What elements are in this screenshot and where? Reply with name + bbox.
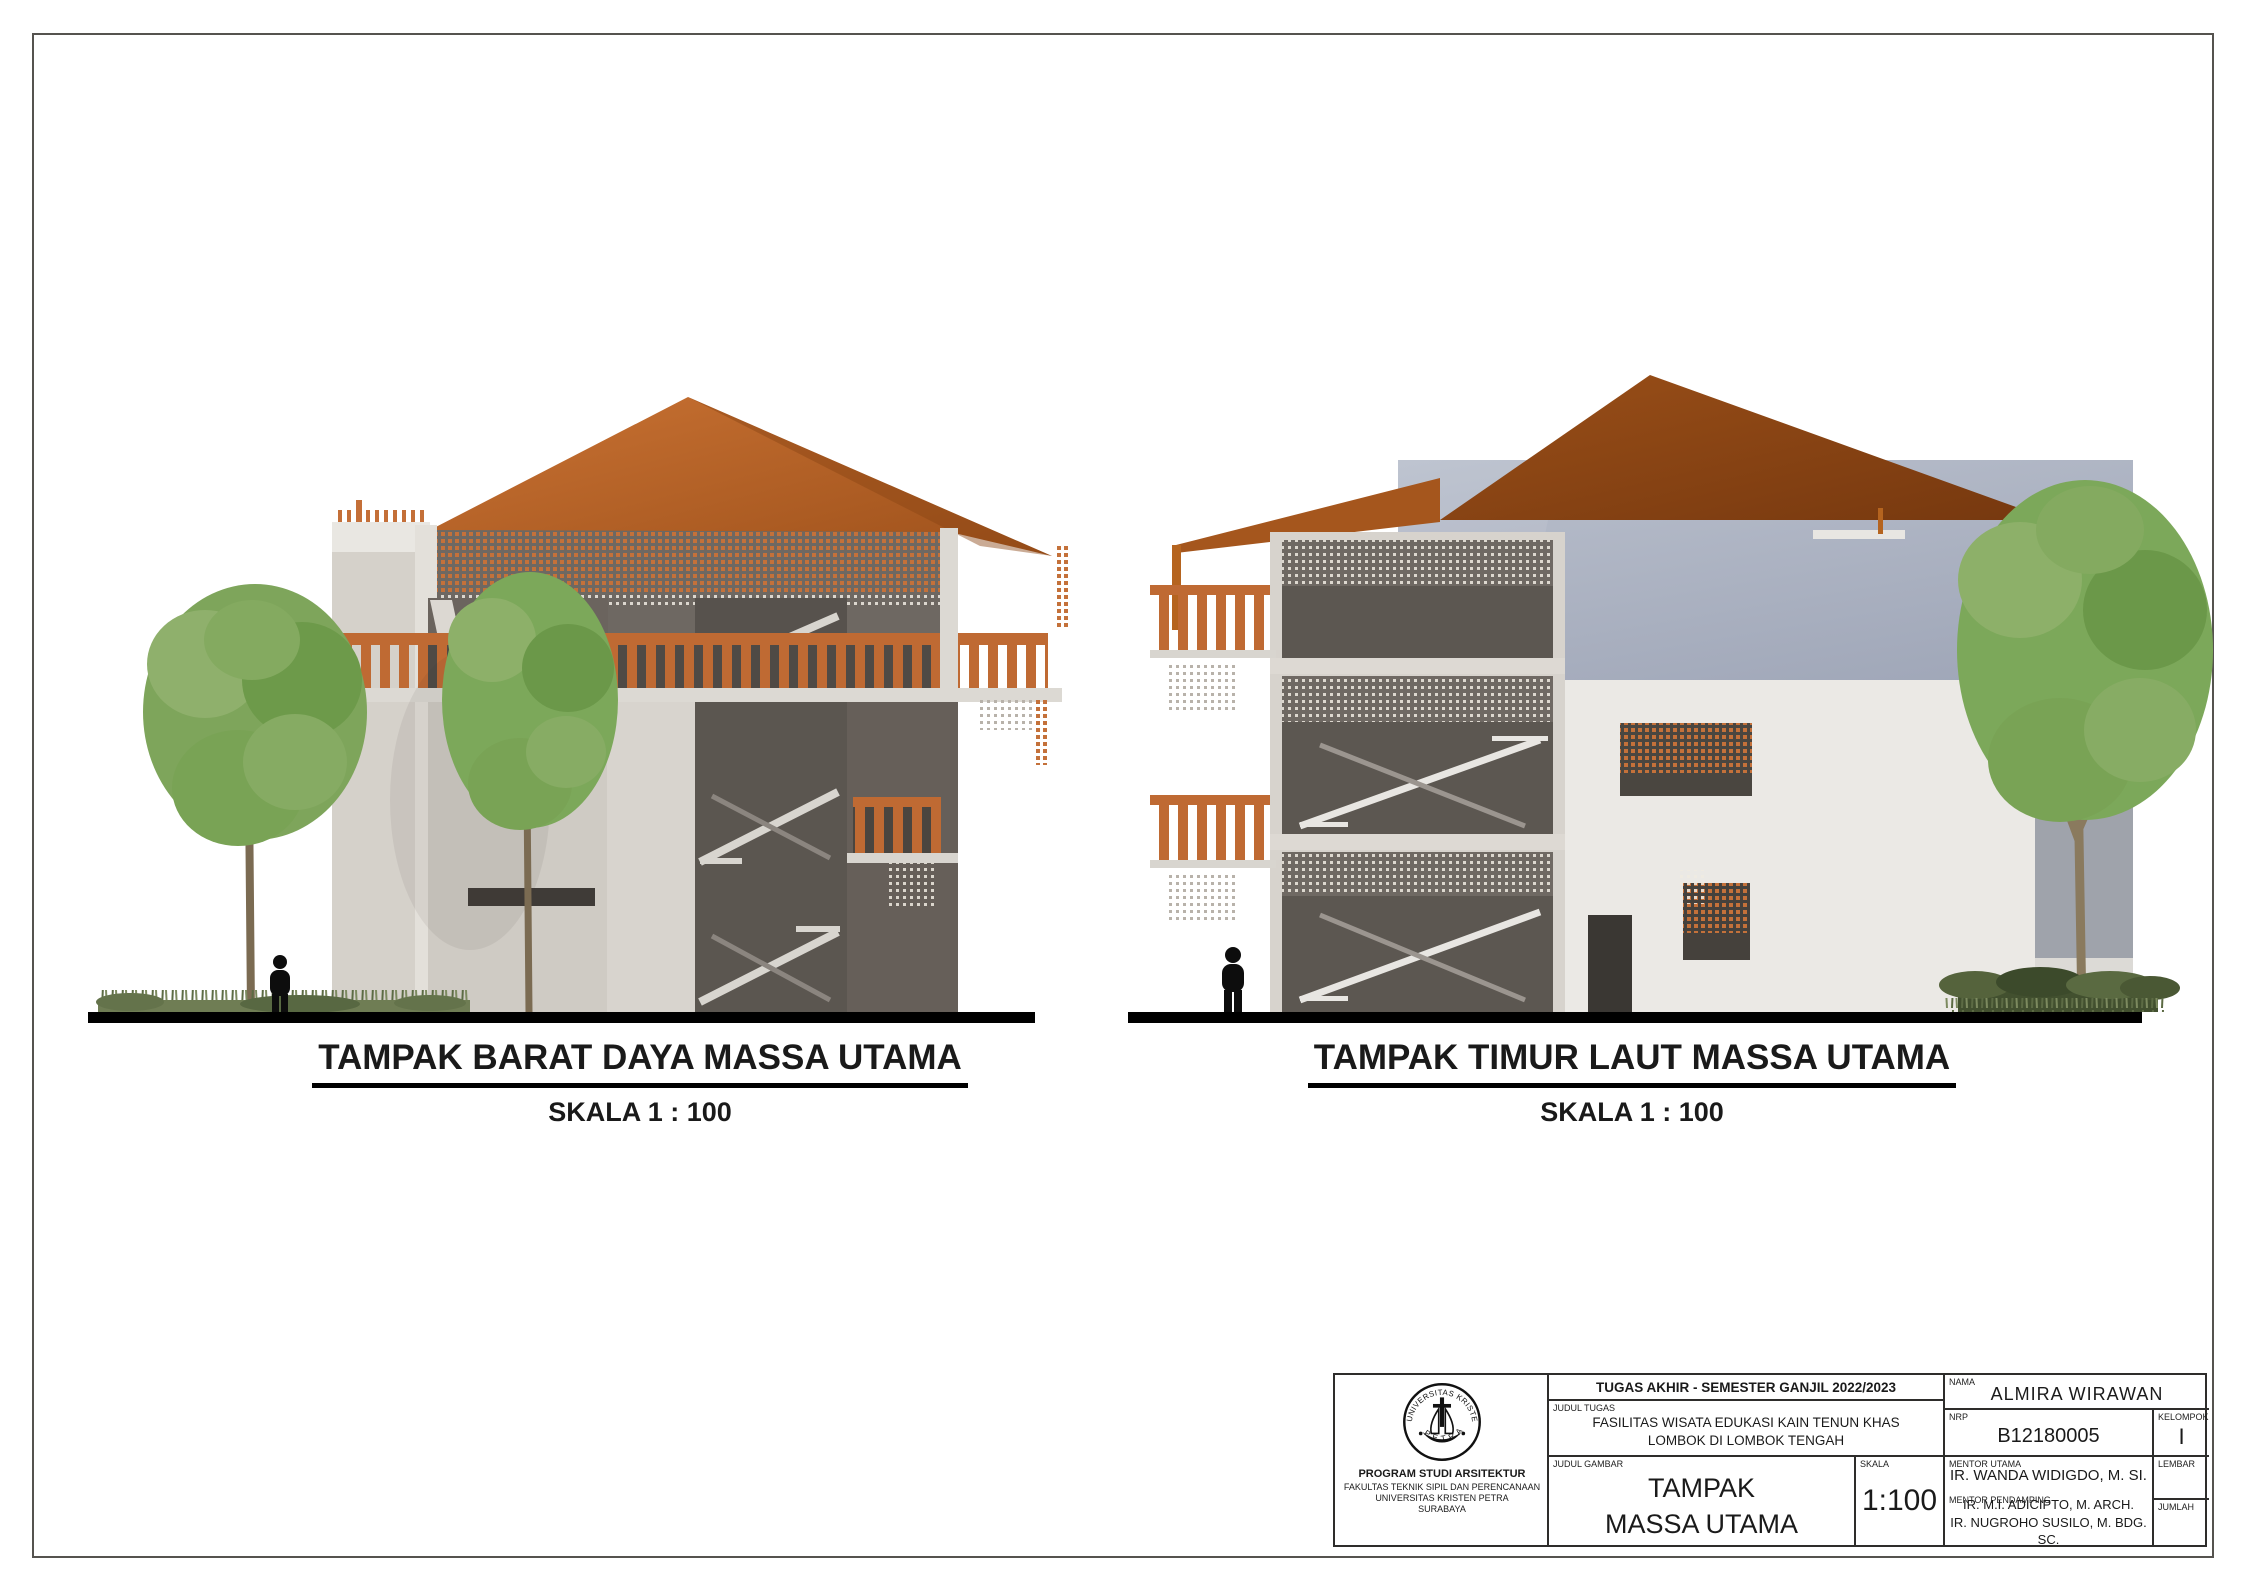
figure-title: TAMPAK BARAT DAYA MASSA UTAMA bbox=[312, 1038, 968, 1088]
judul-gambar-value-line2: MASSA UTAMA bbox=[1605, 1506, 1798, 1542]
balcony-fragment bbox=[1150, 585, 1276, 714]
university-name: UNIVERSITAS KRISTEN PETRA bbox=[1335, 1493, 1549, 1504]
mentor-pendamping-label: MENTOR PENDAMPING bbox=[1949, 1495, 2051, 1505]
faculty-name: FAKULTAS TEKNIK SIPIL DAN PERENCANAAN bbox=[1335, 1482, 1549, 1493]
judul-tugas-value-line2: LOMBOK DI LOMBOK TENGAH bbox=[1648, 1432, 1844, 1450]
nama-value: ALMIRA WIRAWAN bbox=[1991, 1384, 2164, 1405]
judul-tugas-value-line1: FASILITAS WISATA EDUKASI KAIN TENUN KHAS bbox=[1592, 1414, 1899, 1432]
kelompok-value: I bbox=[2178, 1424, 2184, 1450]
judul-tugas-cell: JUDUL TUGAS FASILITAS WISATA EDUKASI KAI… bbox=[1549, 1401, 1945, 1457]
hanging-screen bbox=[980, 700, 1032, 730]
column-strip bbox=[940, 528, 958, 702]
finial bbox=[1878, 508, 1883, 534]
title-block: UNIVERSITAS KRISTEN PETRA bbox=[1333, 1373, 2207, 1547]
mentor-utama-value: IR. WANDA WIDIGDO, M. SI. bbox=[1945, 1467, 2152, 1484]
hip-roof bbox=[1440, 375, 2052, 520]
lembar-label: LEMBAR bbox=[2158, 1459, 2195, 1469]
mentor-utama-label: MENTOR UTAMA bbox=[1949, 1459, 2021, 1469]
institution-cell: UNIVERSITAS KRISTEN PETRA bbox=[1335, 1375, 1549, 1545]
person-silhouette bbox=[1222, 947, 1244, 1012]
judul-gambar-cell: JUDUL GAMBAR TAMPAK MASSA UTAMA bbox=[1549, 1457, 1856, 1545]
assignment-header: TUGAS AKHIR - SEMESTER GANJIL 2022/2023 bbox=[1596, 1380, 1896, 1395]
hanging-screen bbox=[888, 863, 938, 907]
elevation-northeast bbox=[1128, 375, 2213, 1023]
balcony-fragment bbox=[1150, 795, 1276, 924]
floating-lattice-strip bbox=[1033, 697, 1047, 765]
mentor-pendamping-line2: IR. NUGROHO SUSILO, M. BDG. SC. bbox=[1945, 1514, 2152, 1545]
figure-title: TAMPAK TIMUR LAUT MASSA UTAMA bbox=[1308, 1038, 1956, 1088]
stair-tower bbox=[1270, 532, 1565, 1012]
jumlah-label: JUMLAH bbox=[2158, 1502, 2194, 1512]
parapet-battens bbox=[338, 500, 424, 522]
skala-value: 1:100 bbox=[1862, 1484, 1937, 1518]
front-white-volume bbox=[1565, 680, 2035, 1012]
figure-scale: SKALA 1 : 100 bbox=[1222, 1097, 2042, 1128]
nama-cell: NAMA ALMIRA WIRAWAN bbox=[1945, 1375, 2209, 1410]
figure-scale: SKALA 1 : 100 bbox=[230, 1097, 1050, 1128]
ground-line bbox=[1128, 1012, 2142, 1023]
header-cell: TUGAS AKHIR - SEMESTER GANJIL 2022/2023 bbox=[1549, 1375, 1945, 1401]
nrp-value: B12180005 bbox=[1997, 1425, 2099, 1448]
caption-southwest: TAMPAK BARAT DAYA MASSA UTAMA SKALA 1 : … bbox=[230, 1038, 1050, 1128]
city-name: SURABAYA bbox=[1335, 1504, 1549, 1515]
program-name: PROGRAM STUDI ARSITEKTUR bbox=[1335, 1468, 1549, 1482]
kelompok-cell: KELOMPOK I bbox=[2154, 1410, 2209, 1457]
balcony-slab bbox=[847, 853, 958, 863]
lembar-cell: LEMBAR bbox=[2154, 1457, 2209, 1500]
skala-cell: SKALA 1:100 bbox=[1856, 1457, 1945, 1545]
architecture-sheet: TAMPAK BARAT DAYA MASSA UTAMA SKALA 1 : … bbox=[0, 0, 2245, 1587]
balcony-rail bbox=[853, 797, 941, 807]
ground-line bbox=[88, 1012, 1035, 1023]
mentor-cell: MENTOR UTAMA IR. WANDA WIDIGDO, M. SI. M… bbox=[1945, 1457, 2154, 1545]
parapet-edge bbox=[1813, 530, 1905, 539]
elevation-drawings bbox=[0, 0, 2245, 1587]
balcony-slats bbox=[853, 807, 941, 853]
jumlah-cell: JUMLAH bbox=[2154, 1500, 2209, 1545]
caption-northeast: TAMPAK TIMUR LAUT MASSA UTAMA SKALA 1 : … bbox=[1222, 1038, 2042, 1128]
judul-gambar-value-line1: TAMPAK bbox=[1648, 1470, 1755, 1506]
hedge bbox=[1939, 967, 2180, 1012]
institution-text: PROGRAM STUDI ARSITEKTUR FAKULTAS TEKNIK… bbox=[1335, 1468, 1549, 1516]
elevation-southwest bbox=[88, 397, 1069, 1023]
university-logo: UNIVERSITAS KRISTEN PETRA bbox=[1401, 1381, 1483, 1463]
pier bbox=[607, 702, 695, 1012]
nrp-cell: NRP B12180005 bbox=[1945, 1410, 2154, 1457]
floating-lattice-strip bbox=[1055, 545, 1069, 630]
